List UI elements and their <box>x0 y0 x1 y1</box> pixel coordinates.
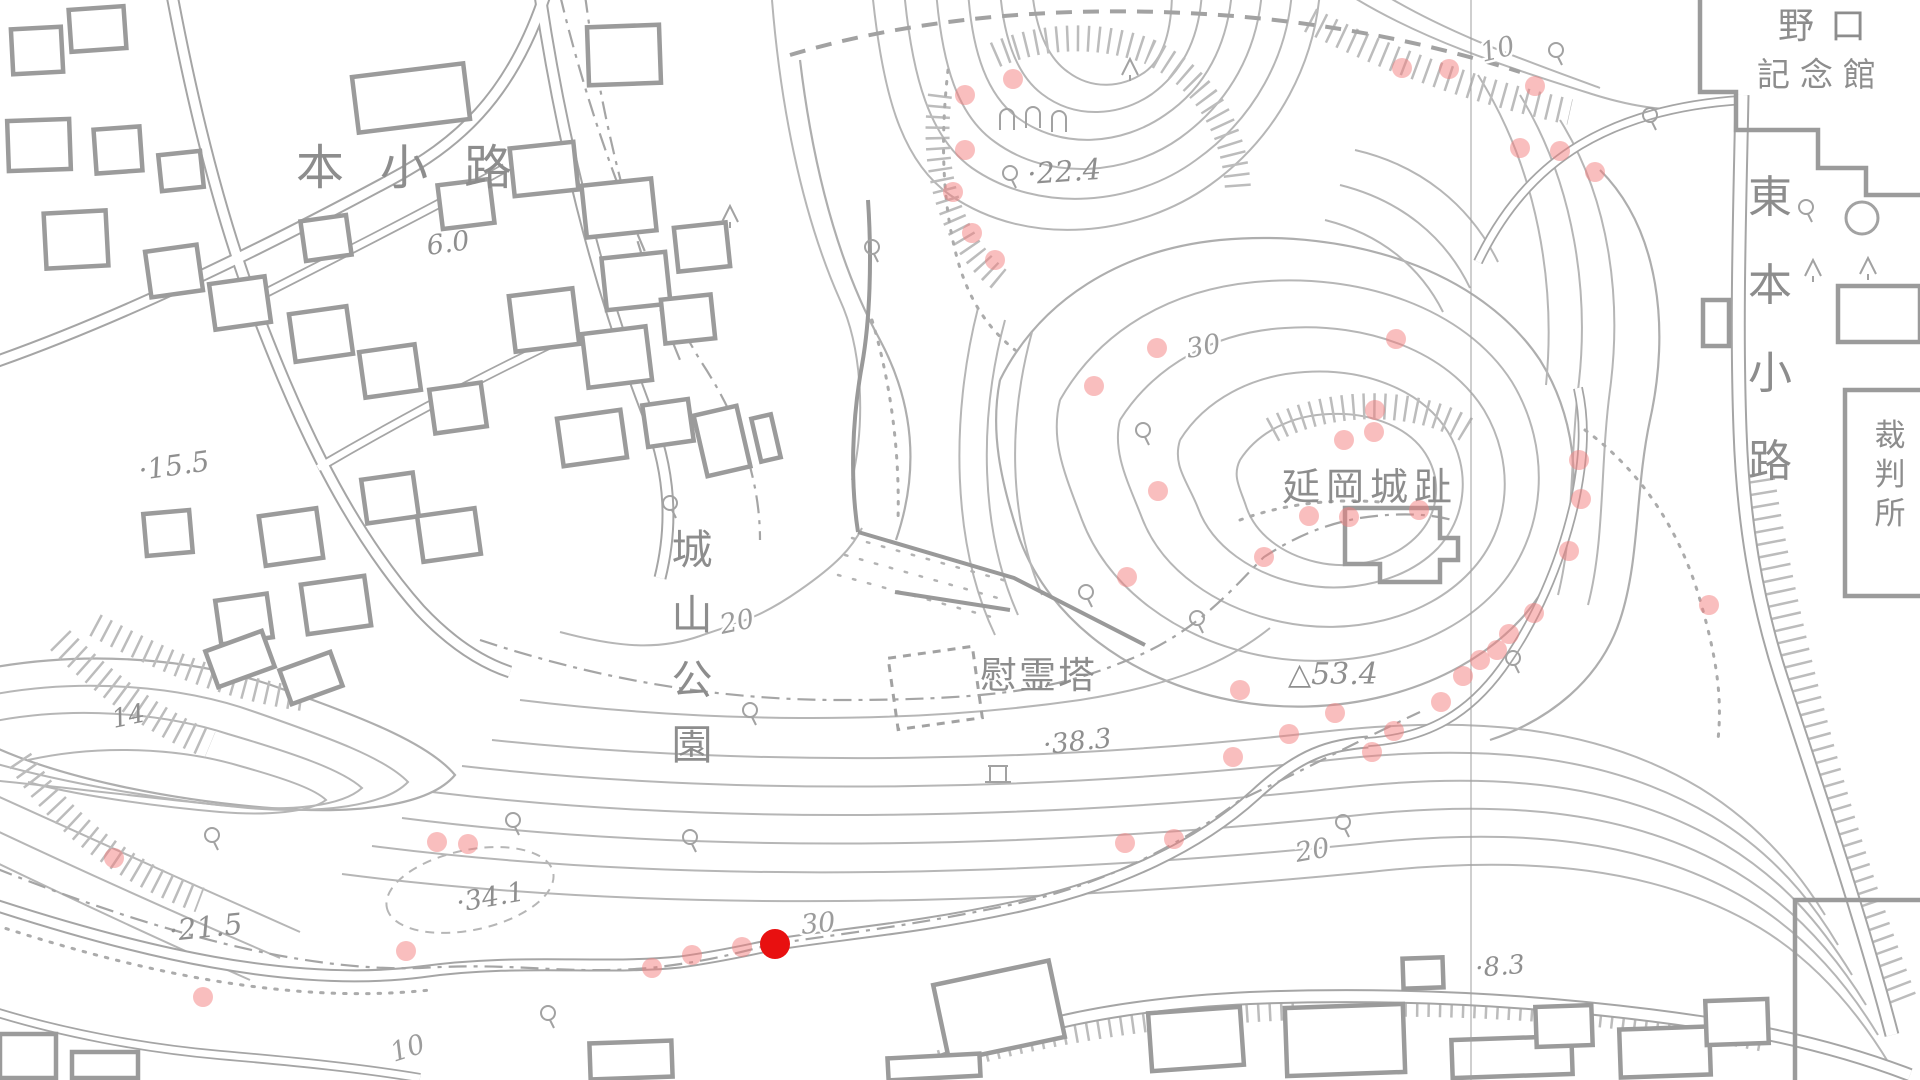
survey-point-dot[interactable] <box>1569 450 1589 470</box>
survey-point-dot[interactable] <box>962 223 982 243</box>
survey-point-dot[interactable] <box>458 834 478 854</box>
spot-height-label: 6.0 <box>425 225 472 262</box>
topographic-map: 本小路野口記念館東本小路裁判所城山公園延岡城趾慰霊塔 6.0·22.4·15.5… <box>0 0 1920 1080</box>
contour-value-label: 30 <box>1184 328 1223 364</box>
contour-value-label: 10 <box>387 1029 429 1069</box>
survey-point-dot[interactable] <box>1386 329 1406 349</box>
survey-point-dot[interactable] <box>1164 829 1184 849</box>
survey-point-dot[interactable] <box>1499 624 1519 644</box>
spot-height-label: ·22.4 <box>1026 152 1102 191</box>
survey-point-dot[interactable] <box>1559 541 1579 561</box>
survey-point-dot[interactable] <box>1525 76 1545 96</box>
survey-point-dot[interactable] <box>1571 489 1591 509</box>
spot-height-label: ·15.5 <box>136 444 211 487</box>
spot-height-label: ·8.3 <box>1474 950 1526 984</box>
survey-point-dot[interactable] <box>943 182 963 202</box>
survey-point-dot[interactable] <box>1409 500 1429 520</box>
place-label-higashi-hon-kouji: 東本小路 <box>1748 173 1792 486</box>
survey-point-dot[interactable] <box>1384 721 1404 741</box>
survey-point-dot[interactable] <box>1550 141 1570 161</box>
place-label-nobeoka-joshi: 延岡城趾 <box>1282 467 1458 509</box>
survey-point-dot[interactable] <box>642 958 662 978</box>
survey-point-dot[interactable] <box>104 848 124 868</box>
survey-point-dot[interactable] <box>1148 481 1168 501</box>
survey-point-dot[interactable] <box>1365 400 1385 420</box>
contour-value-label: 10 <box>1477 30 1518 68</box>
survey-point-dot[interactable] <box>1334 430 1354 450</box>
survey-point-dot[interactable] <box>1325 703 1345 723</box>
place-label-shiroyama-koen: 城山公園 <box>672 527 713 768</box>
contour-value-label: 30 <box>799 907 836 941</box>
survey-point-dot[interactable] <box>1453 666 1473 686</box>
survey-point-dot[interactable] <box>1362 742 1382 762</box>
survey-point-dot[interactable] <box>193 987 213 1007</box>
survey-point-dot[interactable] <box>1003 69 1023 89</box>
contour-value-label: 20 <box>716 603 757 641</box>
survey-point-dot[interactable] <box>955 140 975 160</box>
survey-point-dot[interactable] <box>1223 747 1243 767</box>
survey-point-dot[interactable] <box>732 937 752 957</box>
survey-point-dot[interactable] <box>1279 724 1299 744</box>
survey-point-dot[interactable] <box>1117 567 1137 587</box>
spot-height-label: △53.4 <box>1288 657 1378 692</box>
survey-point-dot[interactable] <box>1339 507 1359 527</box>
survey-point-dot[interactable] <box>1084 376 1104 396</box>
survey-point-dot[interactable] <box>1147 338 1167 358</box>
survey-point-dot[interactable] <box>682 945 702 965</box>
survey-point-dot[interactable] <box>1364 422 1384 442</box>
survey-point-dot[interactable] <box>396 941 416 961</box>
survey-point-dot[interactable] <box>1230 680 1250 700</box>
survey-point-dot[interactable] <box>955 85 975 105</box>
survey-point-dot[interactable] <box>1299 506 1319 526</box>
place-label-hon-kouji: 本小路 <box>296 142 548 195</box>
current-position-marker[interactable] <box>760 929 790 959</box>
place-label-noguchi-line1: 野口 <box>1778 6 1882 46</box>
place-label-saibansho: 裁判所 <box>1875 418 1906 531</box>
spot-height-label: ·21.5 <box>167 906 244 948</box>
survey-point-dot[interactable] <box>1439 59 1459 79</box>
grand-staircase <box>786 602 838 772</box>
place-label-noguchi-line2: 記念館 <box>1757 57 1886 94</box>
survey-point-dot[interactable] <box>1470 650 1490 670</box>
survey-point-dot[interactable] <box>1254 547 1274 567</box>
survey-point-dot[interactable] <box>985 250 1005 270</box>
spot-height-label: 14 <box>109 699 148 735</box>
place-label-ireito: 慰霊塔 <box>980 656 1097 697</box>
spot-height-label: ·34.1 <box>454 876 527 918</box>
survey-point-dot[interactable] <box>1699 595 1719 615</box>
survey-point-dot[interactable] <box>1510 138 1530 158</box>
survey-point-dot[interactable] <box>1524 603 1544 623</box>
map-viewport: 本小路野口記念館東本小路裁判所城山公園延岡城趾慰霊塔 6.0·22.4·15.5… <box>0 0 1920 1080</box>
landmark-circle <box>1846 202 1878 234</box>
contour-value-label: 20 <box>1292 832 1332 869</box>
survey-point-dot[interactable] <box>1392 58 1412 78</box>
survey-point-dot[interactable] <box>1487 640 1507 660</box>
survey-point-dot[interactable] <box>1115 833 1135 853</box>
survey-point-dot[interactable] <box>427 832 447 852</box>
spot-height-label: ·38.3 <box>1041 723 1113 761</box>
survey-point-dot[interactable] <box>1431 692 1451 712</box>
survey-point-dot[interactable] <box>1585 162 1605 182</box>
